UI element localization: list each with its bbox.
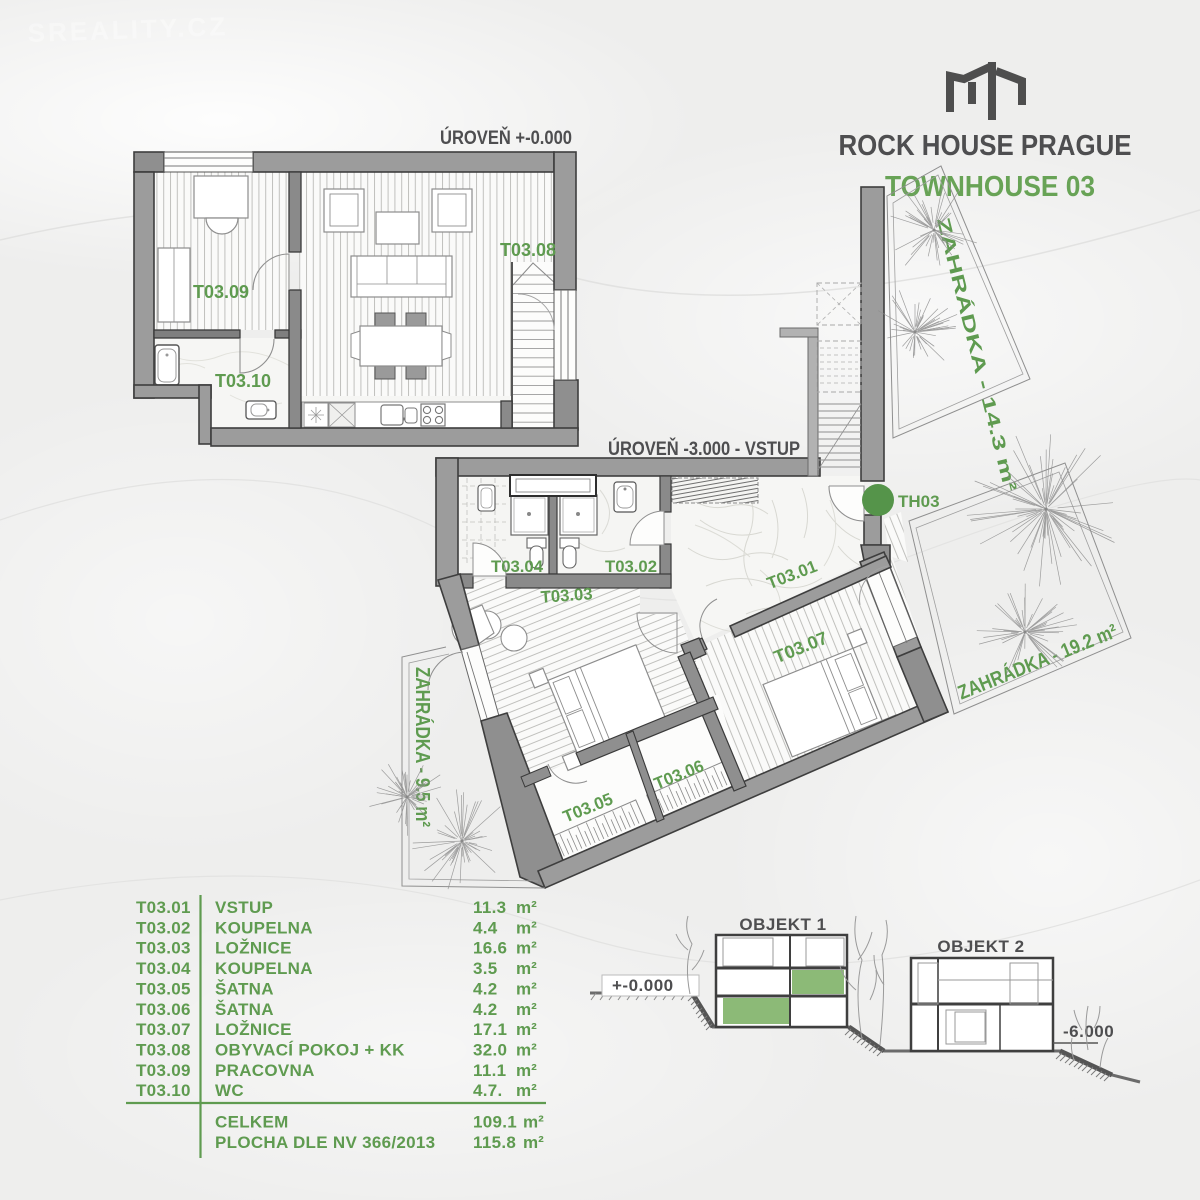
svg-text:m²: m² [516, 918, 537, 937]
svg-text:T03.04: T03.04 [136, 959, 191, 978]
svg-text:m²: m² [523, 1113, 544, 1132]
svg-text:T03.03: T03.03 [136, 939, 191, 958]
svg-text:m²: m² [516, 1020, 537, 1039]
svg-text:4.2: 4.2 [473, 979, 498, 998]
svg-text:LOŽNICE: LOŽNICE [215, 1020, 292, 1039]
svg-text:PLOCHA DLE NV 366/2013: PLOCHA DLE NV 366/2013 [215, 1133, 435, 1152]
svg-text:4.2: 4.2 [473, 1000, 498, 1019]
svg-text:ŠATNA: ŠATNA [215, 979, 274, 998]
svg-text:109.1: 109.1 [473, 1113, 517, 1132]
svg-text:PRACOVNA: PRACOVNA [215, 1061, 315, 1080]
svg-text:17.1: 17.1 [473, 1020, 507, 1039]
svg-text:m²: m² [523, 1133, 544, 1152]
svg-text:4.4: 4.4 [473, 918, 498, 937]
svg-text:m²: m² [516, 898, 537, 917]
svg-text:m²: m² [516, 959, 537, 978]
svg-text:-6.000: -6.000 [1063, 1022, 1114, 1041]
svg-text:T03.02: T03.02 [605, 557, 657, 576]
svg-text:32.0: 32.0 [473, 1040, 507, 1059]
svg-text:KOUPELNA: KOUPELNA [215, 959, 313, 978]
svg-text:m²: m² [516, 1081, 537, 1100]
svg-text:KOUPELNA: KOUPELNA [215, 918, 313, 937]
svg-text:T03.06: T03.06 [136, 1000, 191, 1019]
svg-text:ŠATNA: ŠATNA [215, 1000, 274, 1019]
svg-text:m²: m² [516, 1000, 537, 1019]
svg-text:T03.08: T03.08 [500, 240, 556, 260]
svg-text:ÚROVEŇ +-0.000: ÚROVEŇ +-0.000 [440, 127, 572, 149]
svg-text:3.5: 3.5 [473, 959, 498, 978]
svg-text:TH03: TH03 [898, 492, 940, 511]
svg-text:11.1: 11.1 [473, 1061, 506, 1080]
svg-text:T03.01: T03.01 [136, 898, 191, 917]
svg-text:T03.10: T03.10 [215, 371, 271, 391]
svg-text:T03.02: T03.02 [136, 918, 191, 937]
svg-text:T03.09: T03.09 [136, 1061, 191, 1080]
svg-text:CELKEM: CELKEM [215, 1113, 289, 1132]
svg-text:m²: m² [516, 1040, 537, 1059]
svg-text:LOŽNICE: LOŽNICE [215, 939, 292, 958]
svg-text:115.8: 115.8 [473, 1133, 516, 1152]
svg-text:ÚROVEŇ -3.000 - VSTUP: ÚROVEŇ -3.000 - VSTUP [608, 438, 800, 460]
svg-text:ROCK HOUSE PRAGUE: ROCK HOUSE PRAGUE [839, 130, 1132, 162]
svg-text:4.7.: 4.7. [473, 1081, 503, 1100]
svg-text:m²: m² [516, 979, 537, 998]
svg-text:T03.08: T03.08 [136, 1040, 191, 1059]
svg-text:16.6: 16.6 [473, 939, 507, 958]
svg-text:T03.05: T03.05 [136, 979, 191, 998]
svg-text:OBJEKT 2: OBJEKT 2 [937, 937, 1024, 956]
svg-text:T03.09: T03.09 [193, 282, 249, 302]
svg-text:WC: WC [215, 1081, 244, 1100]
svg-text:OBYVACÍ POKOJ + KK: OBYVACÍ POKOJ + KK [215, 1040, 405, 1059]
svg-text:OBJEKT 1: OBJEKT 1 [739, 915, 826, 934]
svg-text:m²: m² [516, 1061, 537, 1080]
svg-text:m²: m² [516, 939, 537, 958]
svg-text:T03.07: T03.07 [136, 1020, 191, 1039]
svg-text:11.3: 11.3 [473, 898, 506, 917]
svg-text:VSTUP: VSTUP [215, 898, 273, 917]
svg-text:+-0.000: +-0.000 [612, 976, 674, 995]
svg-text:T03.03: T03.03 [540, 584, 593, 607]
svg-text:T03.10: T03.10 [136, 1081, 191, 1100]
svg-text:T03.04: T03.04 [491, 557, 544, 576]
